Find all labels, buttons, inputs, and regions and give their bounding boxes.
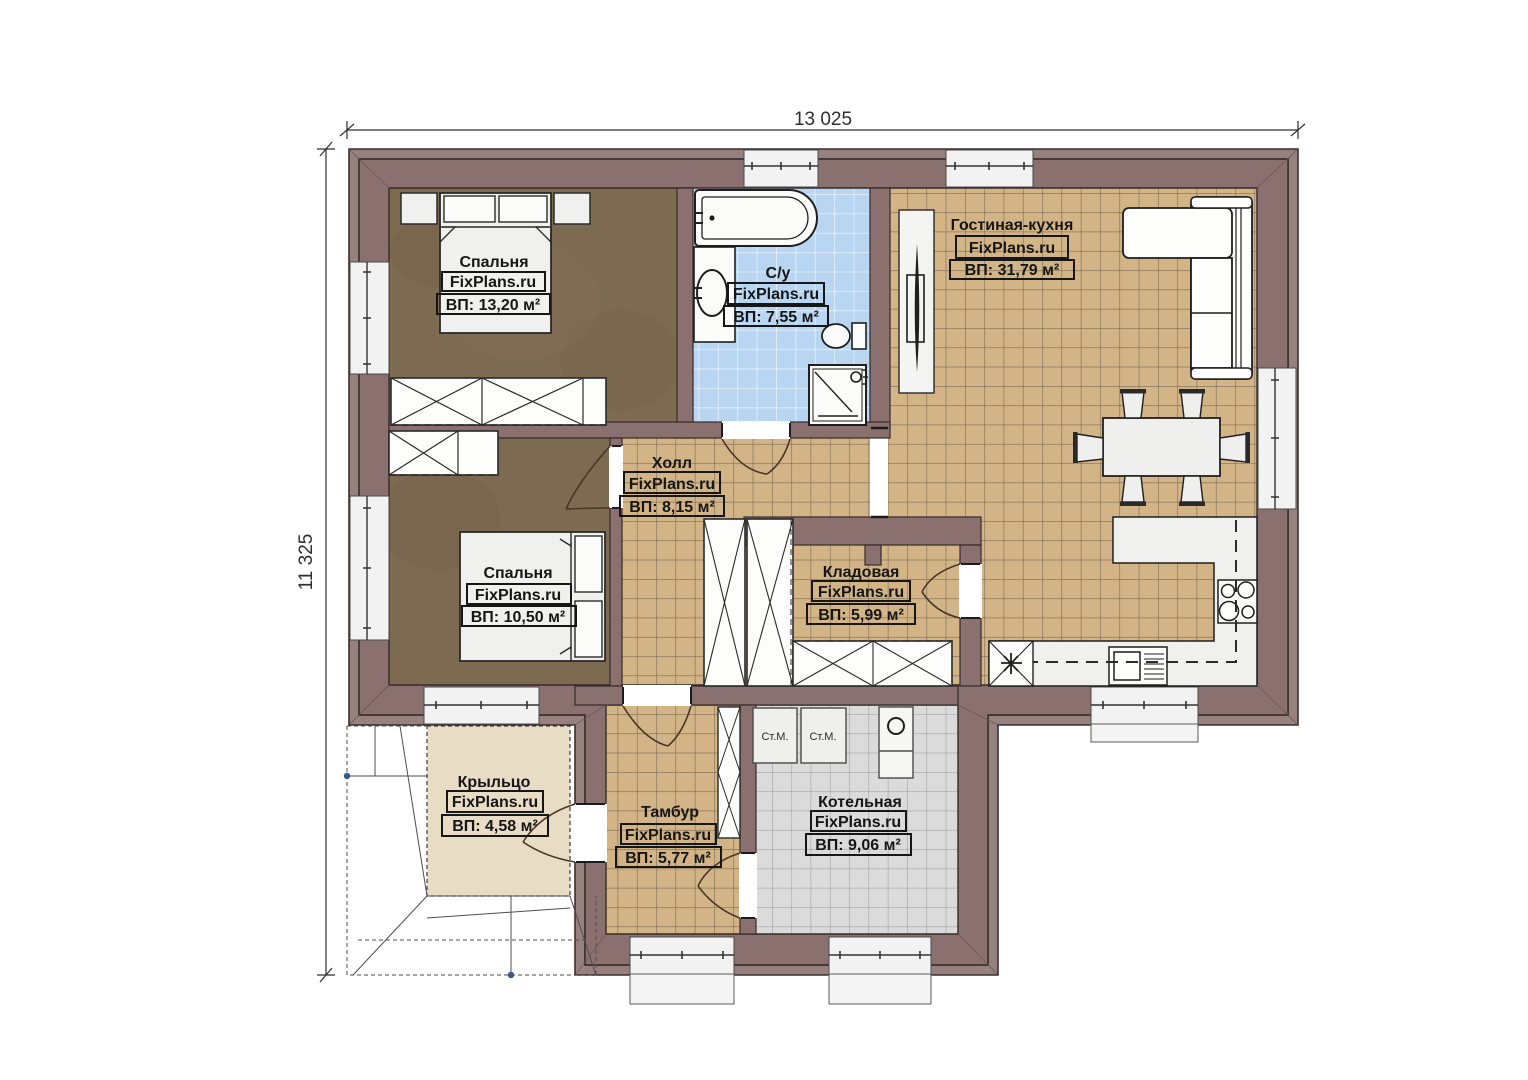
svg-text:Котельная: Котельная: [818, 794, 902, 811]
svg-text:11 325: 11 325: [296, 534, 317, 591]
svg-text:FixPlans.ru: FixPlans.ru: [450, 274, 536, 291]
svg-text:Кладовая: Кладовая: [823, 564, 900, 581]
svg-text:ВП: 13,20 м²: ВП: 13,20 м²: [446, 297, 540, 314]
svg-text:Гостиная-кухня: Гостиная-кухня: [951, 217, 1074, 234]
svg-text:ВП: 4,58 м²: ВП: 4,58 м²: [452, 818, 538, 835]
svg-text:Ст.М.: Ст.М.: [761, 731, 788, 743]
svg-text:Ст.М.: Ст.М.: [809, 731, 836, 743]
svg-text:ВП: 5,99 м²: ВП: 5,99 м²: [818, 607, 904, 624]
svg-text:FixPlans.ru: FixPlans.ru: [815, 814, 901, 831]
svg-text:FixPlans.ru: FixPlans.ru: [629, 476, 715, 493]
svg-text:13 025: 13 025: [794, 109, 852, 130]
svg-text:ВП: 7,55 м²: ВП: 7,55 м²: [733, 309, 819, 326]
svg-text:FixPlans.ru: FixPlans.ru: [625, 827, 711, 844]
svg-text:С/у: С/у: [766, 265, 791, 282]
svg-text:ВП: 8,15 м²: ВП: 8,15 м²: [629, 499, 715, 516]
svg-text:ВП: 10,50 м²: ВП: 10,50 м²: [471, 609, 565, 626]
svg-text:FixPlans.ru: FixPlans.ru: [733, 286, 819, 303]
svg-text:FixPlans.ru: FixPlans.ru: [818, 584, 904, 601]
svg-text:Спальня: Спальня: [483, 565, 552, 582]
svg-text:Спальня: Спальня: [459, 254, 528, 271]
svg-text:ВП: 9,06 м²: ВП: 9,06 м²: [815, 837, 901, 854]
svg-text:FixPlans.ru: FixPlans.ru: [969, 240, 1055, 257]
svg-text:Крыльцо: Крыльцо: [458, 774, 531, 791]
svg-text:Холл: Холл: [652, 455, 692, 472]
svg-text:ВП: 5,77 м²: ВП: 5,77 м²: [625, 850, 711, 867]
svg-text:FixPlans.ru: FixPlans.ru: [475, 587, 561, 604]
svg-text:ВП: 31,79 м²: ВП: 31,79 м²: [965, 262, 1059, 279]
svg-text:Тамбур: Тамбур: [641, 804, 699, 821]
svg-text:FixPlans.ru: FixPlans.ru: [452, 794, 538, 811]
